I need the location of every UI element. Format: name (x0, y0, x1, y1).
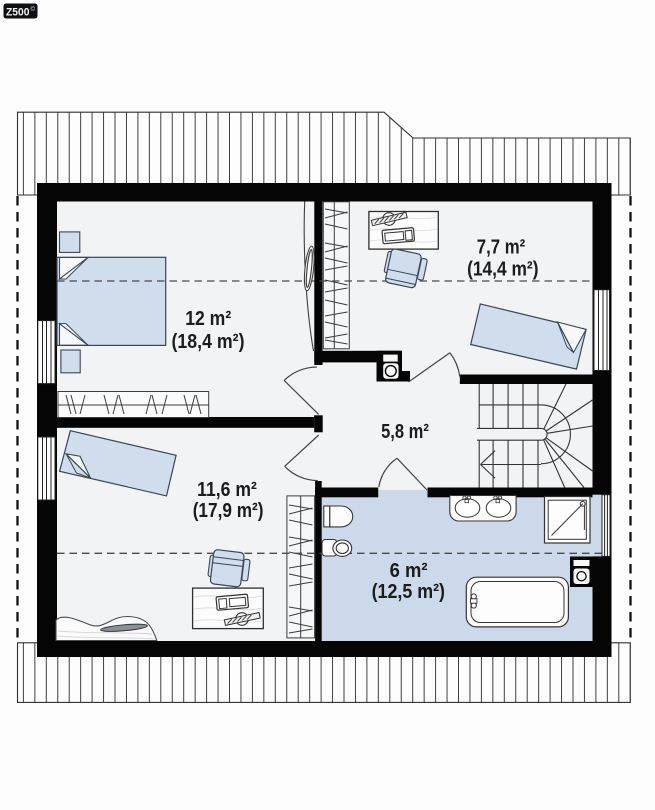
svg-text:(14,4 m²): (14,4 m²) (467, 258, 538, 281)
svg-text:©: © (31, 6, 36, 13)
svg-text:6 m²: 6 m² (390, 559, 428, 582)
svg-text:Z500: Z500 (6, 6, 30, 18)
svg-text:(17,9 m²): (17,9 m²) (193, 499, 264, 522)
svg-text:(12,5 m²): (12,5 m²) (372, 580, 445, 603)
svg-text:12 m²: 12 m² (185, 307, 231, 330)
svg-text:5,8 m²: 5,8 m² (381, 420, 429, 443)
svg-text:(18,4 m²): (18,4 m²) (172, 330, 245, 353)
svg-text:11,6 m²: 11,6 m² (197, 478, 257, 501)
svg-text:7,7 m²: 7,7 m² (477, 236, 526, 259)
